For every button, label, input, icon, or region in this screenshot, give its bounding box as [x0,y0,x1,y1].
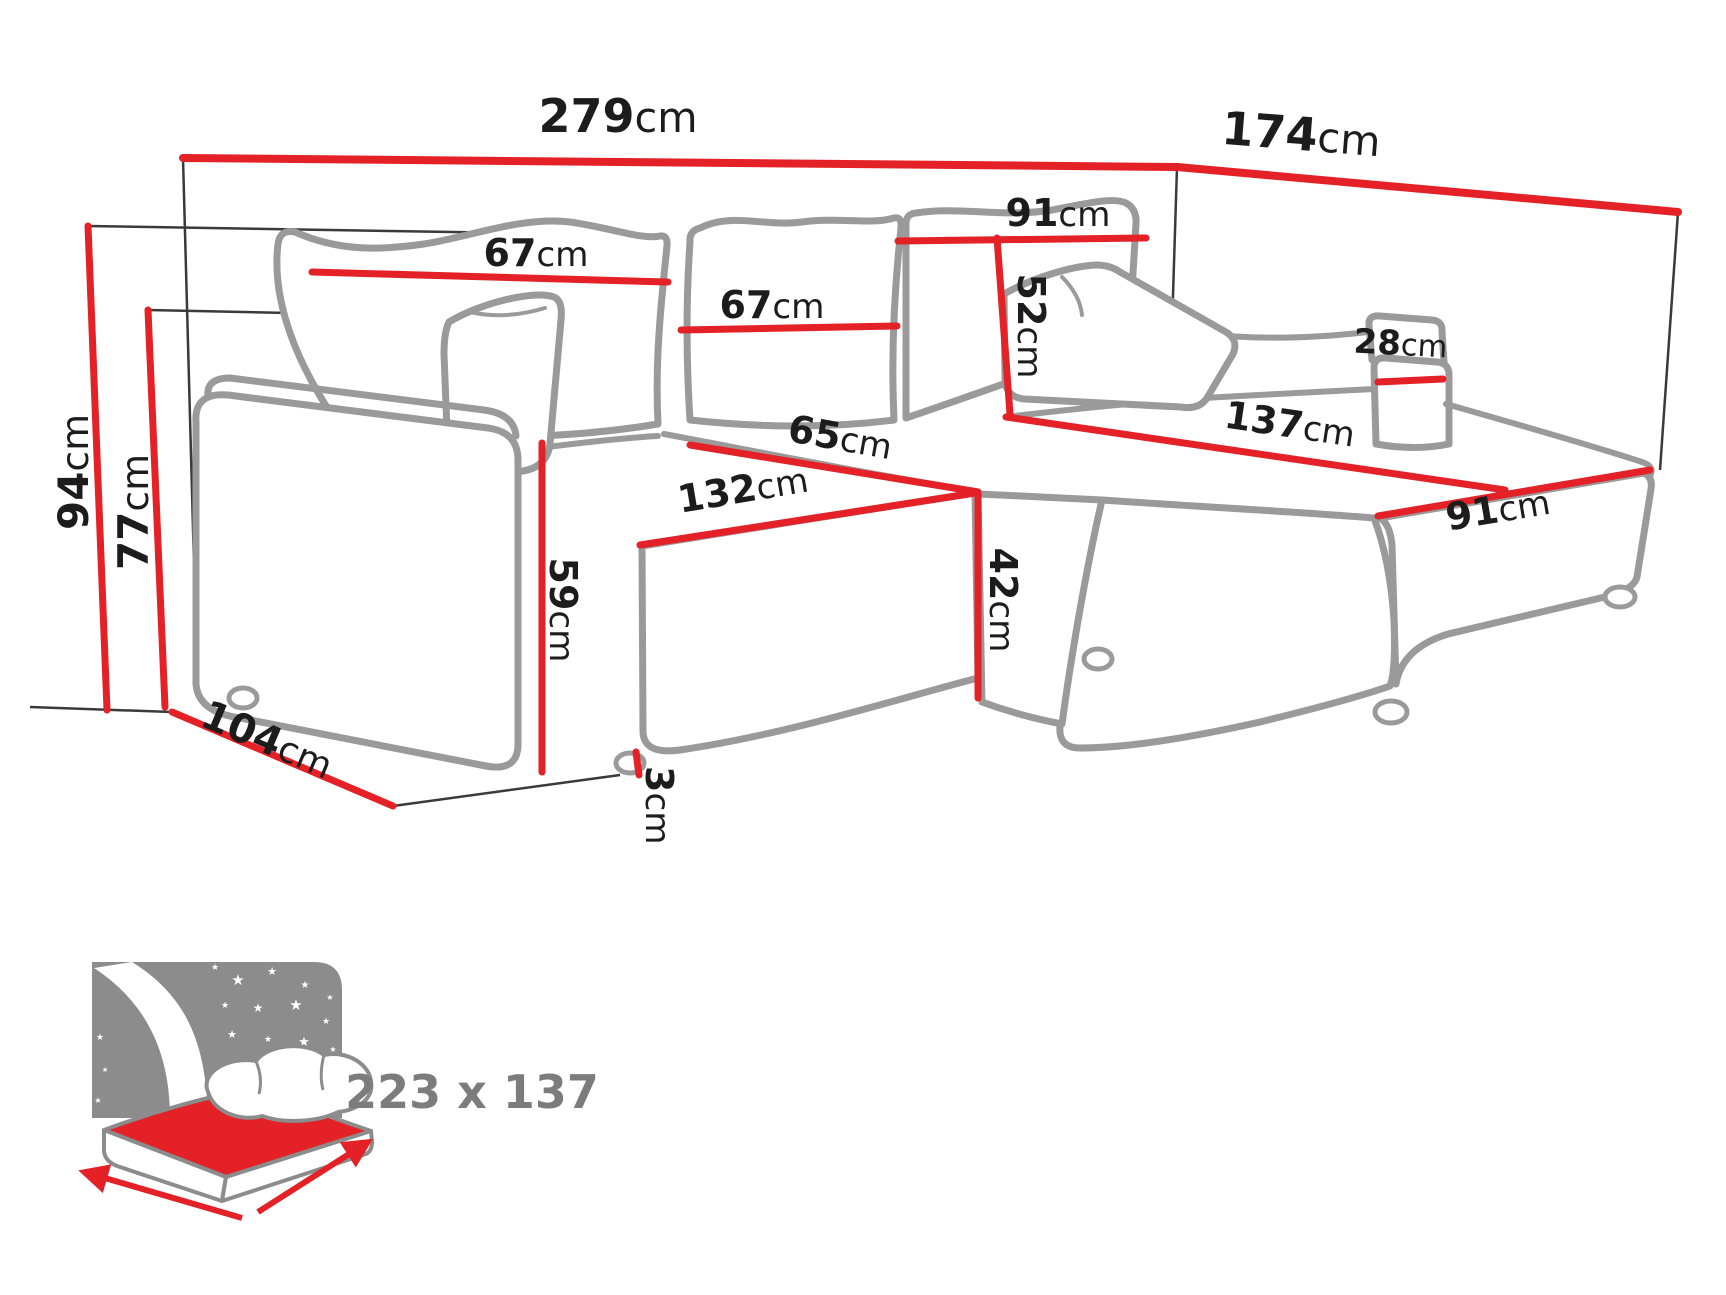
bed-with-stars-icon: ★★★★★★★★★★★★★★★★★★★★★★ [84,962,372,1218]
chaise-front-face [1060,500,1395,748]
chaise-back-edge-right [1446,404,1652,474]
dimension-line-chaise-armrest-width [1378,379,1443,382]
dimension-label-back-cushion-middle: 67cm [720,283,825,327]
star-icon: ★ [264,1035,272,1045]
dimension-label-chaise-armrest-width: 28cm [1353,322,1449,367]
dimension-label-armrest-height: 59cm [541,558,585,663]
star-icon: ★ [322,1017,330,1027]
dimension-label-seat-height: 42cm [981,548,1025,653]
reference-line-floor-front [393,775,620,806]
star-icon: ★ [231,971,244,989]
star-icon: ★ [227,1028,237,1041]
dimension-label-chaise-length: 137cm [1222,393,1358,456]
reference-line-right-drop [1660,212,1678,470]
dimension-label-seat-width: 132cm [674,457,811,522]
star-icon: ★ [96,1033,104,1043]
leg [1375,701,1407,723]
dimension-diagram: 279cm 174cm 94cm 77cm 104cm 67cm 67cm 91… [0,0,1726,1295]
dimension-label-frame-height: 77cm [109,454,158,570]
seat-front-face [642,493,978,751]
star-icon: ★ [102,1066,108,1074]
star-icon: ★ [221,1001,229,1011]
chaise-armrest [1374,358,1449,448]
dimension-label-overall-width: 279cm [538,89,697,143]
sofa-drawing [196,201,1652,773]
dimension-label-leg-height: 3cm [637,766,681,845]
star-icon: ★ [211,963,219,973]
sofa-dimension-drawing: 279cm 174cm 94cm 77cm 104cm 67cm 67cm 91… [0,0,1726,1295]
leg [1605,587,1635,607]
star-icon: ★ [301,980,310,991]
sleeping-area-label: 223 x 137 [345,1065,599,1119]
star-icon: ★ [253,1001,264,1015]
dimension-line-chaise-backrest-width [898,238,1146,241]
star-icon: ★ [326,993,333,1002]
dimension-label-back-cushion-left: 67cm [484,231,589,275]
star-icon: ★ [289,996,302,1014]
star-icon: ★ [94,1096,101,1105]
dimension-label-overall-height: 94cm [49,414,98,530]
star-icon: ★ [267,965,277,978]
reference-line-floor-left [30,707,172,712]
dimension-line-overall-width [183,158,1177,167]
leg [1084,649,1112,669]
dimension-label-chaise-backrest-width: 91cm [1006,191,1111,235]
dimension-line-overall-depth [1177,167,1678,212]
dimension-label-overall-depth: 174cm [1220,101,1383,167]
dimension-label-backrest-height: 52cm [1009,274,1053,379]
